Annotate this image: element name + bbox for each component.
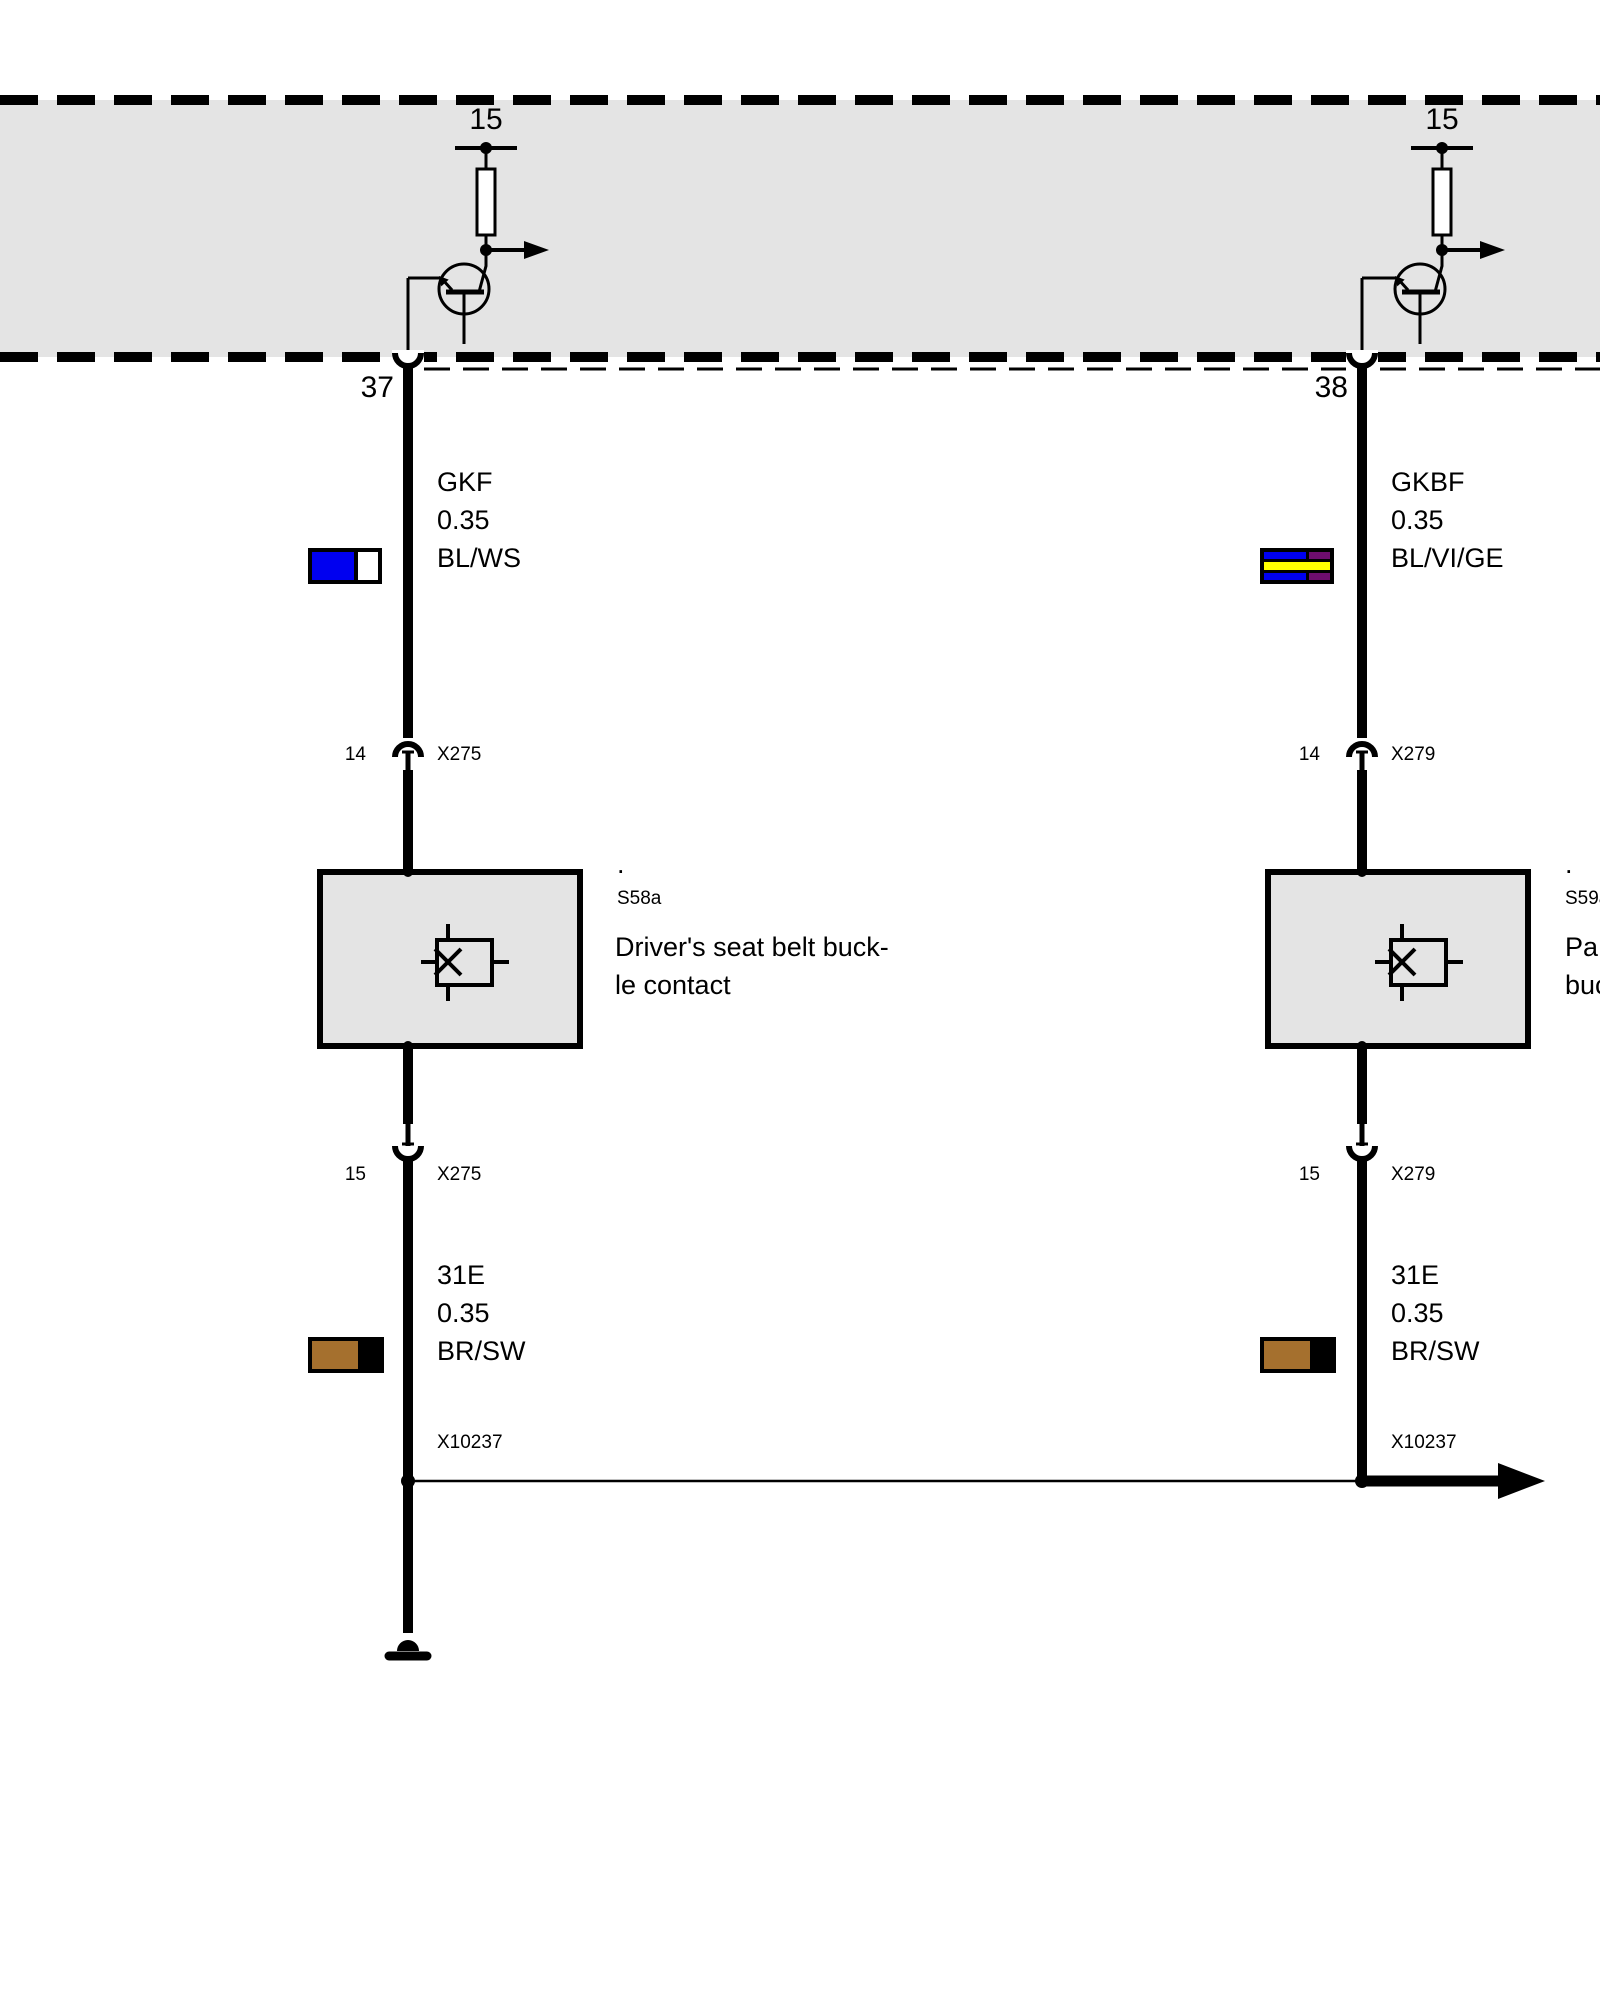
component-desc-left: Driver's seat belt buck- le contact (615, 928, 889, 1004)
swatch-brown (1264, 1341, 1310, 1369)
wire-signal: 31E (1391, 1256, 1480, 1294)
wire-color-code: BL/VI/GE (1391, 539, 1504, 577)
wire-color-swatch-bl-ws (308, 548, 382, 584)
component-desc-line1: Pa (1565, 928, 1600, 966)
connector-pin-right-bottom: 15 (1274, 1164, 1320, 1185)
terminal-label-left: 15 (456, 104, 516, 136)
resistor-left (477, 169, 495, 235)
wire-label-right-lower: 31E 0.35 BR/SW (1391, 1256, 1480, 1370)
connector-pin-left-bottom: 15 (320, 1164, 366, 1185)
component-dot-left: . (617, 848, 625, 880)
swatch-row (1264, 562, 1330, 569)
connector-pin-left-top: 14 (320, 744, 366, 765)
component-desc-line1: Driver's seat belt buck- (615, 928, 889, 966)
component-dot-right: . (1565, 848, 1573, 880)
wire-signal: 31E (437, 1256, 526, 1294)
component-desc-right: Pa buc (1565, 928, 1600, 1004)
wire-color-swatch-br-sw-left (308, 1337, 384, 1373)
ground-dome (397, 1640, 419, 1651)
swatch-black (358, 1341, 380, 1369)
splice-label-right: X10237 (1391, 1432, 1457, 1453)
swatch-violet (1309, 552, 1330, 559)
wire-signal: GKF (437, 463, 521, 501)
swatch-blue (1264, 573, 1306, 580)
wire-gauge: 0.35 (1391, 1294, 1480, 1332)
wiring-diagram-page: { "module_band": { "left_circuit": { "te… (0, 0, 1600, 2000)
component-desc-line2: le contact (615, 966, 889, 1004)
wire-color-swatch-bl-vi-ge (1260, 548, 1334, 584)
control-module-band (0, 100, 1600, 357)
component-desc-line2: buc (1565, 966, 1600, 1004)
pin-label-37: 37 (330, 372, 394, 404)
wire-label-left-upper: GKF 0.35 BL/WS (437, 463, 521, 577)
component-id-s58a: S58a (617, 888, 661, 909)
box-terminal-dot (403, 867, 413, 877)
wire-color-swatch-br-sw-right (1260, 1337, 1336, 1373)
component-id-s59a: S59a (1565, 888, 1600, 909)
swatch-row (1264, 573, 1330, 580)
swatch-yellow (1264, 562, 1330, 569)
pin-label-38: 38 (1284, 372, 1348, 404)
wire-gauge: 0.35 (1391, 501, 1504, 539)
connector-label-x275-top: X275 (437, 744, 481, 765)
swatch-brown (312, 1341, 358, 1369)
wire-label-left-lower: 31E 0.35 BR/SW (437, 1256, 526, 1370)
swatch-violet (1309, 573, 1330, 580)
swatch-blue (312, 552, 354, 580)
connector-pin-right-top: 14 (1274, 744, 1320, 765)
swatch-black (1310, 1341, 1332, 1369)
continuation-arrow-head (1498, 1463, 1545, 1499)
wire-gauge: 0.35 (437, 501, 521, 539)
swatch-row (1264, 552, 1330, 559)
wire-gauge: 0.35 (437, 1294, 526, 1332)
wire-color-code: BR/SW (1391, 1332, 1480, 1370)
wire-color-code: BR/SW (437, 1332, 526, 1370)
connector-label-x275-bottom: X275 (437, 1164, 481, 1185)
wire-signal: GKBF (1391, 463, 1504, 501)
splice-label-left: X10237 (437, 1432, 503, 1453)
wire-color-code: BL/WS (437, 539, 521, 577)
wire-label-right-upper: GKBF 0.35 BL/VI/GE (1391, 463, 1504, 577)
swatch-white (354, 552, 378, 580)
connector-label-x279-bottom: X279 (1391, 1164, 1435, 1185)
resistor-right (1433, 169, 1451, 235)
terminal-label-right: 15 (1412, 104, 1472, 136)
swatch-blue (1264, 552, 1306, 559)
connector-label-x279-top: X279 (1391, 744, 1435, 765)
box-terminal-dot (1357, 867, 1367, 877)
